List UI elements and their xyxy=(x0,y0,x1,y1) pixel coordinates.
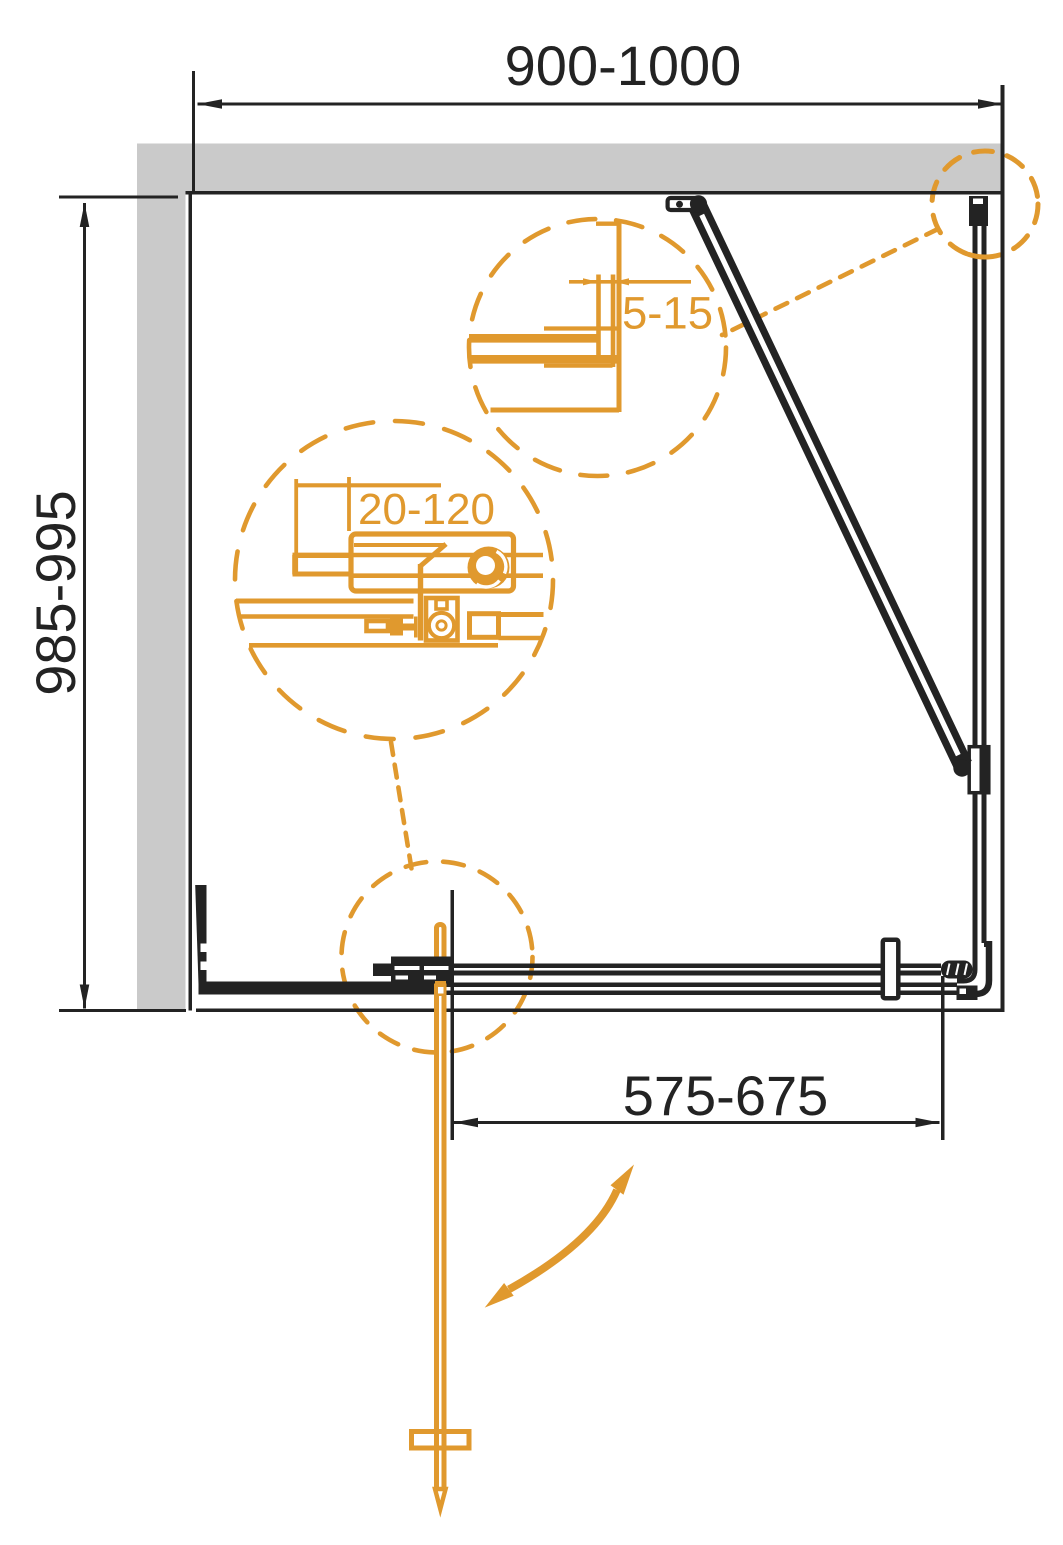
svg-text:985-995: 985-995 xyxy=(24,490,87,696)
svg-text:5-15: 5-15 xyxy=(622,288,713,339)
svg-text:900-1000: 900-1000 xyxy=(505,34,742,97)
svg-text:575-675: 575-675 xyxy=(623,1064,829,1127)
svg-text:20-120: 20-120 xyxy=(358,485,495,534)
